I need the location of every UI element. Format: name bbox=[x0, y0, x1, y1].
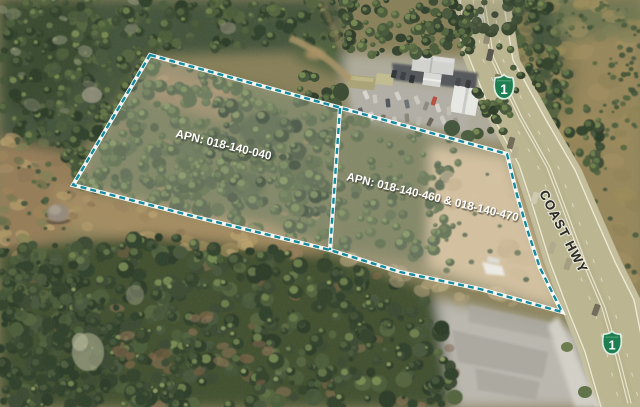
svg-text:1: 1 bbox=[608, 338, 615, 353]
svg-text:1: 1 bbox=[500, 82, 508, 97]
